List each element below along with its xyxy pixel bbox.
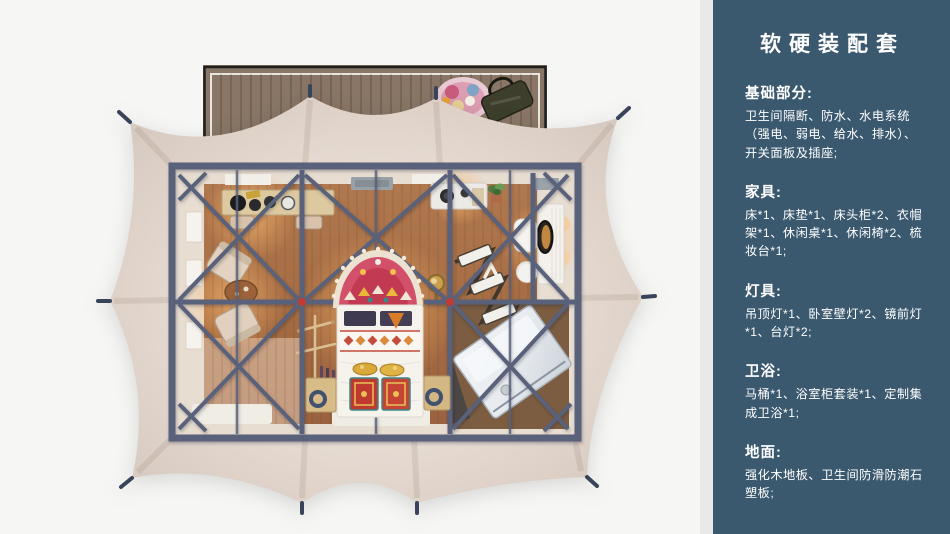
section-body: 马桶*1、浴室柜套装*1、定制集成卫浴*1; xyxy=(745,385,926,422)
sidebar-title: 软硬装配套 xyxy=(739,28,926,58)
section-lighting: 灯具: 吊顶灯*1、卧室壁灯*2、镜前灯*1、台灯*2; xyxy=(745,280,926,342)
section-heading: 地面: xyxy=(745,441,926,462)
section-heading: 灯具: xyxy=(745,280,926,301)
section-bathroom: 卫浴: 马桶*1、浴室柜套装*1、定制集成卫浴*1; xyxy=(745,360,926,422)
divider-strip xyxy=(700,0,713,534)
red-trunk xyxy=(382,378,410,410)
tent-top-view-svg xyxy=(0,0,700,534)
section-heading: 基础部分: xyxy=(745,82,926,103)
section-body: 床*1、床垫*1、床头柜*2、衣帽架*1、休闲桌*1、休闲椅*2、梳妆台*1; xyxy=(745,206,926,261)
tent-illustration xyxy=(0,0,700,534)
section-flooring: 地面: 强化木地板、卫生间防滑防潮石塑板; xyxy=(745,441,926,503)
red-trunk xyxy=(350,378,378,410)
section-basics: 基础部分: 卫生间隔断、防水、水电系统（强电、弱电、给水、排水）、开关面板及插座… xyxy=(745,82,926,162)
section-body: 卫生间隔断、防水、水电系统（强电、弱电、给水、排水）、开关面板及插座; xyxy=(745,107,926,162)
section-heading: 家具: xyxy=(745,181,926,202)
section-furniture: 家具: 床*1、床垫*1、床头柜*2、衣帽架*1、休闲桌*1、休闲椅*2、梳妆台… xyxy=(745,181,926,261)
bed-pattern-band xyxy=(340,330,420,352)
poster: 软硬装配套 基础部分: 卫生间隔断、防水、水电系统（强电、弱电、给水、排水）、开… xyxy=(0,0,950,534)
section-heading: 卫浴: xyxy=(745,360,926,381)
section-body: 吊顶灯*1、卧室壁灯*2、镜前灯*1、台灯*2; xyxy=(745,305,926,342)
spec-sidebar: 软硬装配套 基础部分: 卫生间隔断、防水、水电系统（强电、弱电、给水、排水）、开… xyxy=(713,0,950,534)
bed-pillow xyxy=(344,311,376,326)
section-body: 强化木地板、卫生间防滑防潮石塑板; xyxy=(745,466,926,503)
